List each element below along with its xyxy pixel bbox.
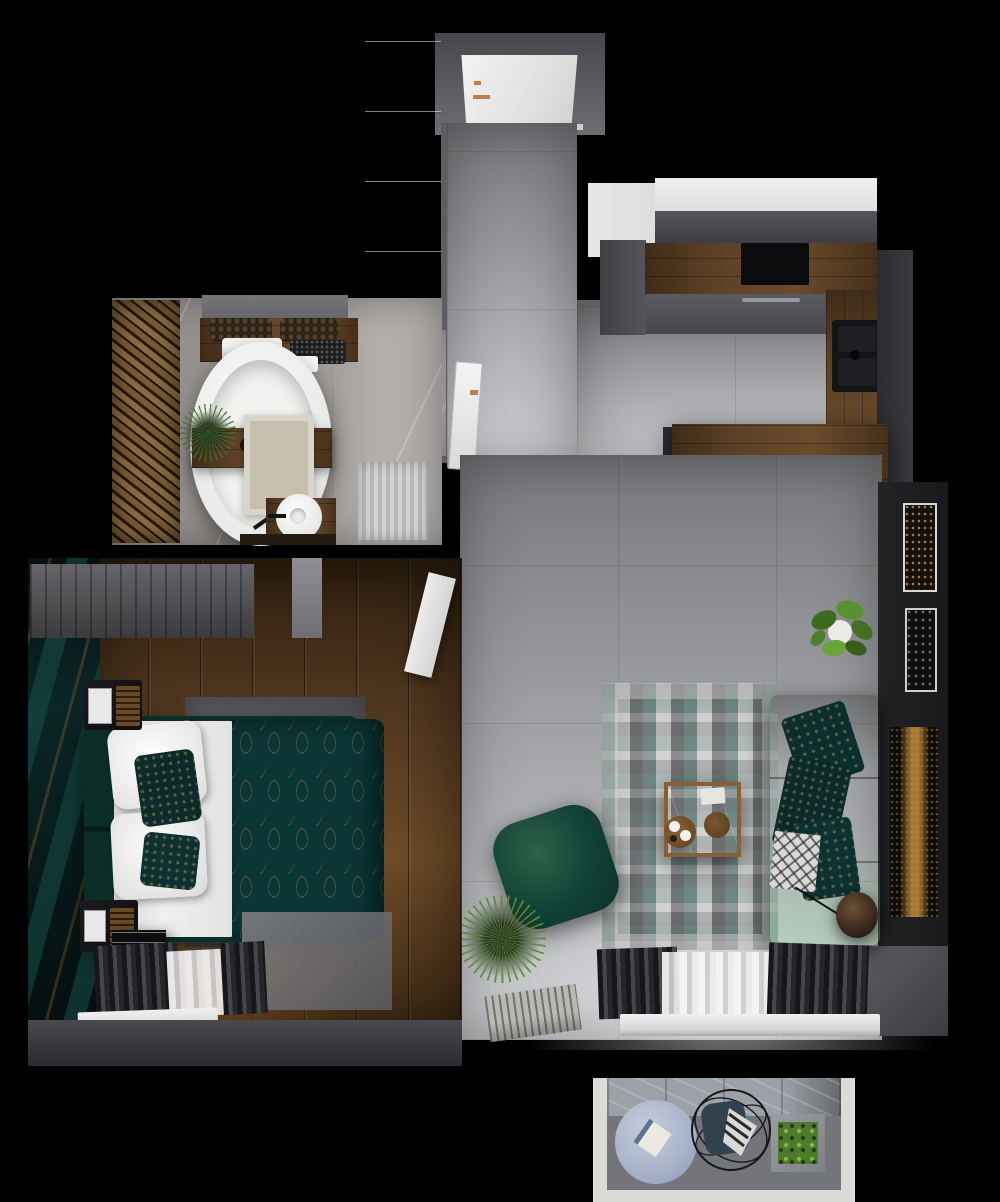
doorway-wall: [292, 558, 322, 638]
induction-hob: [741, 243, 809, 285]
apartment-floorplan-render: [0, 0, 1000, 1202]
bedroom-curtain-right: [220, 941, 268, 1015]
wall-art: [905, 608, 937, 692]
room-bathroom: [112, 298, 442, 545]
kitchen-side-cabinet: [600, 240, 646, 335]
room-balcony: [593, 1078, 855, 1202]
entrance-door: [459, 55, 580, 126]
faucet-icon: [850, 350, 860, 360]
kitchen-window: [911, 252, 948, 482]
wall-art: [903, 503, 937, 592]
spiky-plant: [458, 895, 546, 983]
bedroom-wall-bottom: [28, 1020, 462, 1066]
teal-gold-duvet: [232, 719, 384, 939]
round-blue-rug: [615, 1100, 697, 1184]
shower-area: [358, 462, 428, 540]
patterned-pillow: [133, 748, 202, 828]
floor-lamp: [836, 892, 878, 938]
living-sheer-curtain: [662, 952, 774, 1016]
potted-plant: [806, 596, 876, 666]
wardrobe-curtain: [30, 564, 254, 638]
square-planter: [771, 1114, 825, 1172]
balcony-interior: [607, 1078, 841, 1190]
gold-streak-art: [890, 727, 938, 917]
door-handle-icon: [473, 95, 490, 99]
wood-crate: [116, 686, 140, 726]
kitchen-sink: [832, 320, 882, 392]
door-lock-icon: [474, 81, 481, 85]
sink-faucet-icon: [268, 514, 286, 518]
wire-chair: [689, 1086, 773, 1174]
hallway-wardrobe: [365, 33, 441, 321]
bath-plant: [180, 404, 236, 462]
wood-slat-wall: [112, 300, 180, 543]
bath-shelf: [240, 534, 336, 545]
vanity-basket: [280, 318, 338, 342]
cabinet-shadow-face: [655, 211, 877, 244]
coffee-table: [664, 782, 741, 857]
oven-handle: [742, 298, 800, 302]
nightstand: [84, 680, 142, 730]
planter-greenery: [778, 1122, 818, 1164]
patterned-pillow: [139, 831, 200, 891]
living-window-sill: [620, 1014, 880, 1036]
book-on-table: [700, 787, 725, 805]
mirror-hook-icon: [470, 390, 478, 395]
diamond-throw: [769, 831, 821, 892]
wood-tray: [664, 816, 696, 848]
book-on-rug: [633, 1119, 671, 1157]
room-bedroom: [28, 558, 462, 1062]
upper-cabinets: [655, 178, 877, 211]
side-tray: [704, 812, 730, 838]
living-curtain-right: [767, 942, 869, 1017]
